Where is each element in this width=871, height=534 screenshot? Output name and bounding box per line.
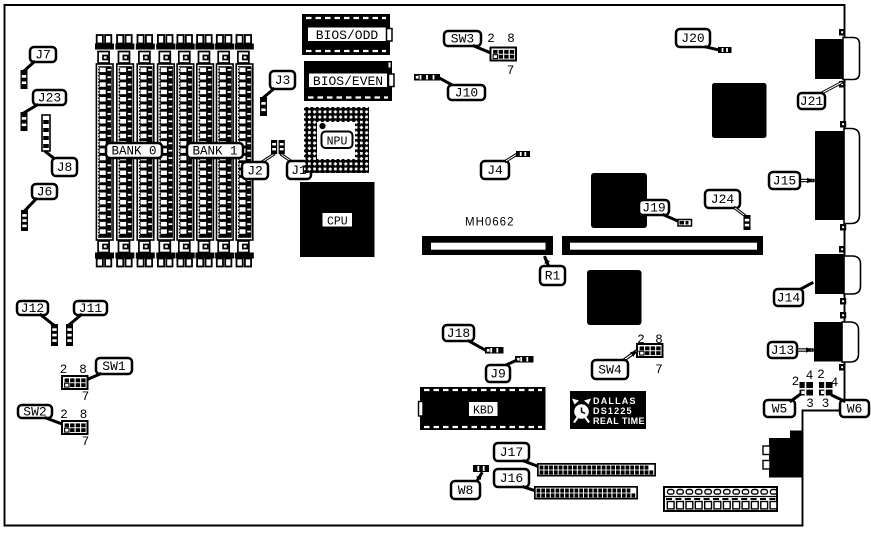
svg-text:W8: W8: [458, 483, 474, 498]
svg-text:W5: W5: [772, 402, 788, 417]
svg-text:3: 3: [806, 397, 814, 411]
svg-text:2: 2: [60, 363, 68, 377]
svg-text:4: 4: [806, 369, 814, 383]
svg-text:SW3: SW3: [451, 32, 474, 47]
svg-text:BANK 0: BANK 0: [111, 145, 156, 159]
svg-text:J24: J24: [711, 192, 735, 207]
svg-text:2: 2: [60, 408, 68, 422]
svg-text:J6: J6: [37, 185, 53, 200]
svg-text:J17: J17: [500, 445, 523, 460]
svg-text:KBD: KBD: [473, 405, 494, 418]
svg-text:J10: J10: [455, 86, 478, 101]
svg-text:W6: W6: [847, 402, 863, 417]
svg-text:REAL TIME: REAL TIME: [593, 416, 645, 426]
svg-text:J7: J7: [35, 48, 51, 63]
svg-text:7: 7: [655, 363, 663, 377]
svg-text:DALLAS: DALLAS: [593, 396, 637, 406]
svg-text:DS1225: DS1225: [593, 406, 633, 416]
svg-text:NPU: NPU: [327, 135, 348, 148]
svg-text:J18: J18: [447, 326, 470, 341]
svg-text:2: 2: [487, 32, 495, 46]
svg-text:J4: J4: [487, 163, 503, 178]
svg-text:8: 8: [79, 363, 87, 377]
svg-text:J2: J2: [247, 164, 263, 179]
svg-text:7: 7: [82, 390, 90, 404]
svg-text:SW1: SW1: [102, 359, 126, 374]
svg-text:J9: J9: [490, 367, 506, 382]
svg-text:J13: J13: [771, 343, 794, 358]
svg-text:SW2: SW2: [23, 405, 46, 420]
svg-text:2: 2: [817, 368, 825, 382]
svg-text:J11: J11: [79, 301, 103, 316]
svg-text:J20: J20: [681, 31, 704, 46]
svg-text:MH0662: MH0662: [465, 217, 514, 229]
svg-text:3: 3: [822, 397, 830, 411]
svg-text:J15: J15: [773, 174, 796, 189]
svg-text:BIOS/ODD: BIOS/ODD: [316, 28, 379, 43]
svg-text:8: 8: [80, 408, 88, 422]
svg-text:J23: J23: [38, 91, 61, 106]
svg-text:R1: R1: [545, 269, 561, 284]
svg-text:J8: J8: [57, 160, 73, 175]
svg-text:J16: J16: [500, 471, 523, 486]
svg-text:7: 7: [507, 64, 515, 78]
svg-text:8: 8: [507, 32, 515, 46]
svg-text:BIOS/EVEN: BIOS/EVEN: [313, 74, 383, 89]
svg-text:2: 2: [792, 375, 800, 389]
svg-text:J19: J19: [642, 201, 665, 216]
svg-text:7: 7: [82, 435, 90, 449]
svg-text:J21: J21: [800, 94, 824, 109]
svg-text:J3: J3: [275, 73, 291, 88]
svg-text:SW4: SW4: [598, 363, 622, 378]
svg-text:J14: J14: [777, 291, 801, 306]
svg-text:CPU: CPU: [327, 215, 348, 228]
svg-text:BANK 1: BANK 1: [192, 145, 237, 159]
